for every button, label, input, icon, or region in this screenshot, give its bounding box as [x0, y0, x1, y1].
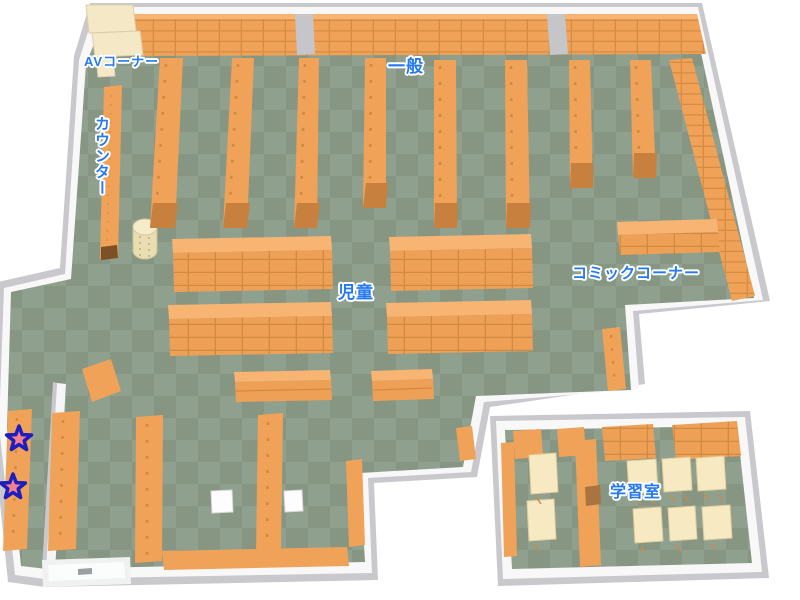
reading-bench [234, 370, 332, 402]
wall-bookshelf [602, 424, 656, 461]
chair [284, 490, 303, 512]
library-floor-map: AVコーナー カウンター 一般 児童 コミックコーナー 学習室 [0, 0, 800, 600]
low-bookshelf [168, 302, 333, 356]
bookshelf-row [256, 413, 283, 552]
wall-pillar [295, 14, 315, 55]
label-av-corner: AVコーナー [84, 55, 159, 68]
label-children: 児童 [338, 284, 374, 301]
label-comic-corner: コミックコーナー [572, 266, 700, 281]
wall-bookshelf [162, 547, 349, 570]
wall-bookshelf [346, 459, 365, 547]
bookshelf-row [434, 60, 458, 228]
table [662, 457, 692, 492]
entrance-door [42, 557, 131, 587]
table [527, 499, 556, 541]
top-wall-bookshelf [133, 14, 706, 56]
bookshelf-row [505, 60, 531, 228]
table [702, 505, 732, 540]
chair [211, 490, 233, 513]
reading-bench [371, 369, 434, 401]
low-bookshelf [617, 219, 720, 255]
label-study-room: 学習室 [610, 485, 661, 501]
bookshelf-row [135, 415, 163, 563]
low-bookshelf [386, 300, 533, 354]
label-counter: カウンター [94, 116, 109, 196]
wall-pillar [547, 14, 568, 55]
wall-bookshelf [672, 421, 741, 460]
table [529, 453, 558, 494]
table [633, 507, 663, 543]
bookshelf-row [569, 60, 593, 188]
low-bookshelf [172, 236, 333, 292]
bookshelf-row [48, 411, 80, 551]
low-bookshelf [389, 234, 533, 291]
table [668, 506, 697, 541]
bookshelf-row [363, 58, 388, 208]
floor-map-drawing [0, 0, 800, 600]
table [696, 456, 726, 491]
label-general: 一般 [388, 58, 424, 75]
